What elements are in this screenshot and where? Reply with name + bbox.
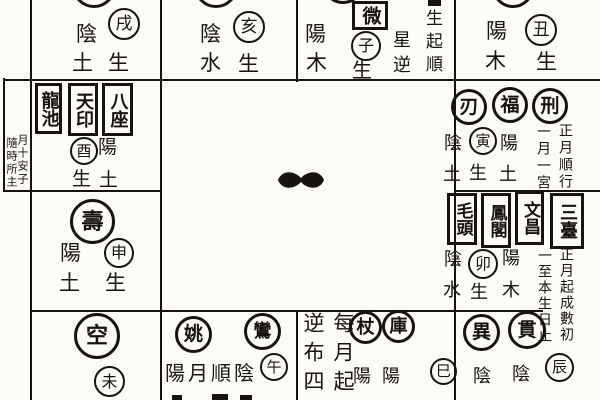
- palace-you-boxed-star-longchi: 龍池: [35, 83, 62, 134]
- star-luan: 鸞: [254, 323, 272, 341]
- palace-yin-star-circle-xing: 刑: [532, 88, 568, 124]
- palace-hai-sheng: 生: [238, 54, 259, 75]
- star-fu: 福: [500, 96, 519, 115]
- palace-si-polarity-2: 陽: [382, 368, 400, 386]
- palace-you-branch-circle: 酉: [70, 137, 98, 165]
- star-yao: 姚: [184, 325, 203, 344]
- palace-shen-polarity: 陽: [60, 243, 81, 264]
- palace-hai-element: 水: [200, 53, 221, 74]
- palace-hai-branch-circle: 亥: [233, 11, 265, 43]
- palace-mao-boxed-star-santai: 三臺: [550, 193, 584, 249]
- branch-yin: 寅: [475, 134, 490, 149]
- palace-chen-polarity-1: 陰: [473, 368, 491, 386]
- palace-wei-branch-circle: 未: [94, 366, 125, 397]
- palace-you-margin-note-inner: 月十安子: [17, 134, 28, 186]
- palace-mao-boxed-star-wenchang: 文昌: [515, 191, 544, 245]
- palace-si-rule-note-left: 逆布四: [302, 312, 323, 399]
- cut-off-glyph: [212, 394, 228, 400]
- branch-mao: 卯: [475, 256, 491, 272]
- grid-line-row1-bottom: [3, 79, 600, 81]
- branch-chen: 辰: [552, 360, 567, 375]
- branch-hai: 亥: [241, 19, 258, 36]
- grid-line-vertical-col2-bottom: [296, 310, 298, 400]
- grid-line-vertical-col2-top: [296, 0, 298, 82]
- palace-chen-branch-circle: 辰: [545, 353, 574, 382]
- palace-mao-boxed-star-fengge: 鳳閣: [481, 193, 511, 248]
- branch-you: 酉: [76, 144, 91, 159]
- palace-chen-star-circle-yi: 異: [463, 314, 500, 351]
- star-bazuo: 八座: [109, 92, 127, 128]
- palace-mao-branch-circle: 卯: [468, 249, 498, 279]
- palace-si-branch-circle: 巳: [430, 358, 457, 385]
- star-shou: 壽: [81, 211, 103, 233]
- palace-yin-polarity-left: 陰: [444, 135, 462, 153]
- palace-hai-star-circle-partial: [194, 0, 238, 8]
- palace-mao-polarity-left: 陰: [444, 251, 462, 269]
- divination-chart-page: 戌 陰 土 生 亥 陰 水 生 微 子 陽 木 生 星逆 生起順 丑 陽 木 生…: [0, 0, 600, 400]
- palace-zi-sheng: 生: [352, 60, 372, 80]
- palace-si-star-circle-zhang: 杖: [349, 311, 382, 344]
- palace-yin-element-right: 土: [499, 166, 517, 184]
- palace-mao-boxed-star-maotou: 毛頭: [447, 193, 477, 245]
- palace-you-element: 土: [99, 171, 118, 190]
- star-maotou: 毛頭: [454, 202, 471, 236]
- palace-xu-sheng: 生: [108, 53, 129, 74]
- star-santai: 三臺: [558, 203, 576, 239]
- palace-mao-rule-note-outer: 正月起成數初: [559, 247, 573, 343]
- palace-wu-star-circle-yao: 姚: [175, 316, 212, 353]
- palace-zi-branch-circle: 子: [351, 31, 381, 61]
- palace-yin-rule-note-outer: 正月順行: [558, 123, 572, 191]
- star-longchi: 龍池: [40, 91, 58, 127]
- palace-you-boxed-star-bazuo: 八座: [102, 83, 133, 136]
- palace-yin-polarity-right: 陽: [500, 135, 518, 153]
- palace-chen-polarity-2: 陰: [512, 366, 530, 384]
- star-wenchang: 文昌: [521, 201, 538, 235]
- palace-zi-element: 木: [306, 53, 327, 74]
- branch-si: 巳: [436, 364, 451, 379]
- palace-mao-polarity-right: 陽: [502, 250, 520, 268]
- palace-chou-sheng: 生: [536, 52, 557, 73]
- cut-off-glyph: [428, 0, 441, 6]
- palace-zi-inner-note: 星逆: [391, 30, 409, 80]
- palace-si-polarity-1: 陽: [353, 368, 371, 386]
- palace-chou-star-circle-partial: [492, 0, 534, 8]
- palace-yin-branch-circle: 寅: [469, 127, 497, 155]
- star-kong: 空: [86, 325, 108, 347]
- palace-wei-big-star-circle: 空: [74, 313, 120, 359]
- palace-wu-star-circle-luan: 鸞: [244, 313, 281, 350]
- palace-mao-sheng: 生: [470, 284, 488, 302]
- palace-wu-note: 陽月順陰: [165, 363, 257, 383]
- star-ren: 刃: [459, 98, 478, 117]
- grid-line-row2-bottom-left: [3, 190, 161, 192]
- palace-chou-branch-circle: 丑: [525, 14, 557, 46]
- star-ku: 庫: [390, 318, 408, 336]
- palace-yin-rule-note-inner: 一月一宮: [536, 124, 550, 192]
- palace-xu-polarity: 陰: [76, 24, 97, 45]
- palace-chou-element: 木: [485, 51, 506, 72]
- palace-wu-branch-circle: 午: [260, 353, 288, 381]
- palace-yin-sheng: 生: [469, 165, 487, 183]
- palace-xu-star-circle-partial: [72, 0, 116, 8]
- center-ink-blob: [276, 165, 326, 195]
- palace-zi-rule-note: 生起順: [423, 9, 440, 78]
- palace-shen-branch-circle: 申: [104, 238, 134, 268]
- cut-off-glyph: [172, 395, 182, 400]
- palace-zi-boxed-star: 微: [352, 1, 388, 30]
- grid-line-row3-bottom: [30, 310, 543, 312]
- palace-you-sheng: 生: [72, 170, 91, 189]
- palace-shen-big-star-circle: 壽: [70, 199, 115, 244]
- grid-line-vertical-col1: [160, 0, 162, 400]
- cut-off-glyph: [240, 395, 252, 400]
- palace-hai-polarity: 陰: [200, 24, 221, 45]
- palace-yin-star-circle-ren: 刃: [451, 89, 487, 125]
- star-wei: 微: [361, 6, 380, 25]
- palace-si-star-circle-ku: 庫: [382, 310, 415, 343]
- palace-mao-element-right: 木: [502, 282, 520, 300]
- star-tianyin: 天印: [74, 92, 92, 128]
- palace-yin-star-circle-fu: 福: [492, 87, 528, 123]
- palace-chou-polarity: 陽: [486, 21, 507, 42]
- palace-you-polarity: 陽: [98, 138, 117, 157]
- branch-zi: 子: [358, 38, 374, 54]
- branch-shen: 申: [111, 245, 127, 261]
- branch-wei: 未: [101, 374, 117, 390]
- palace-zi-polarity: 陽: [305, 24, 326, 45]
- branch-chou: 丑: [533, 22, 550, 39]
- palace-xu-element: 土: [72, 53, 93, 74]
- grid-line-vertical-left: [30, 0, 32, 400]
- star-fengge: 鳳閣: [488, 204, 505, 238]
- star-guan: 貫: [517, 321, 536, 340]
- palace-mao-element-left: 水: [443, 282, 461, 300]
- palace-xu-branch-circle: 戌: [108, 8, 140, 40]
- branch-wu: 午: [266, 360, 281, 375]
- palace-shen-sheng: 生: [105, 273, 126, 294]
- star-zhang: 杖: [357, 319, 375, 337]
- palace-chen-star-circle-guan: 貫: [508, 311, 546, 349]
- branch-xu: 戌: [116, 16, 133, 33]
- palace-shen-element: 土: [59, 273, 80, 294]
- star-xing: 刑: [540, 97, 559, 116]
- palace-you-boxed-star-tianyin: 天印: [68, 83, 98, 136]
- star-yi: 異: [472, 323, 491, 342]
- palace-yin-element-left: 土: [443, 166, 461, 184]
